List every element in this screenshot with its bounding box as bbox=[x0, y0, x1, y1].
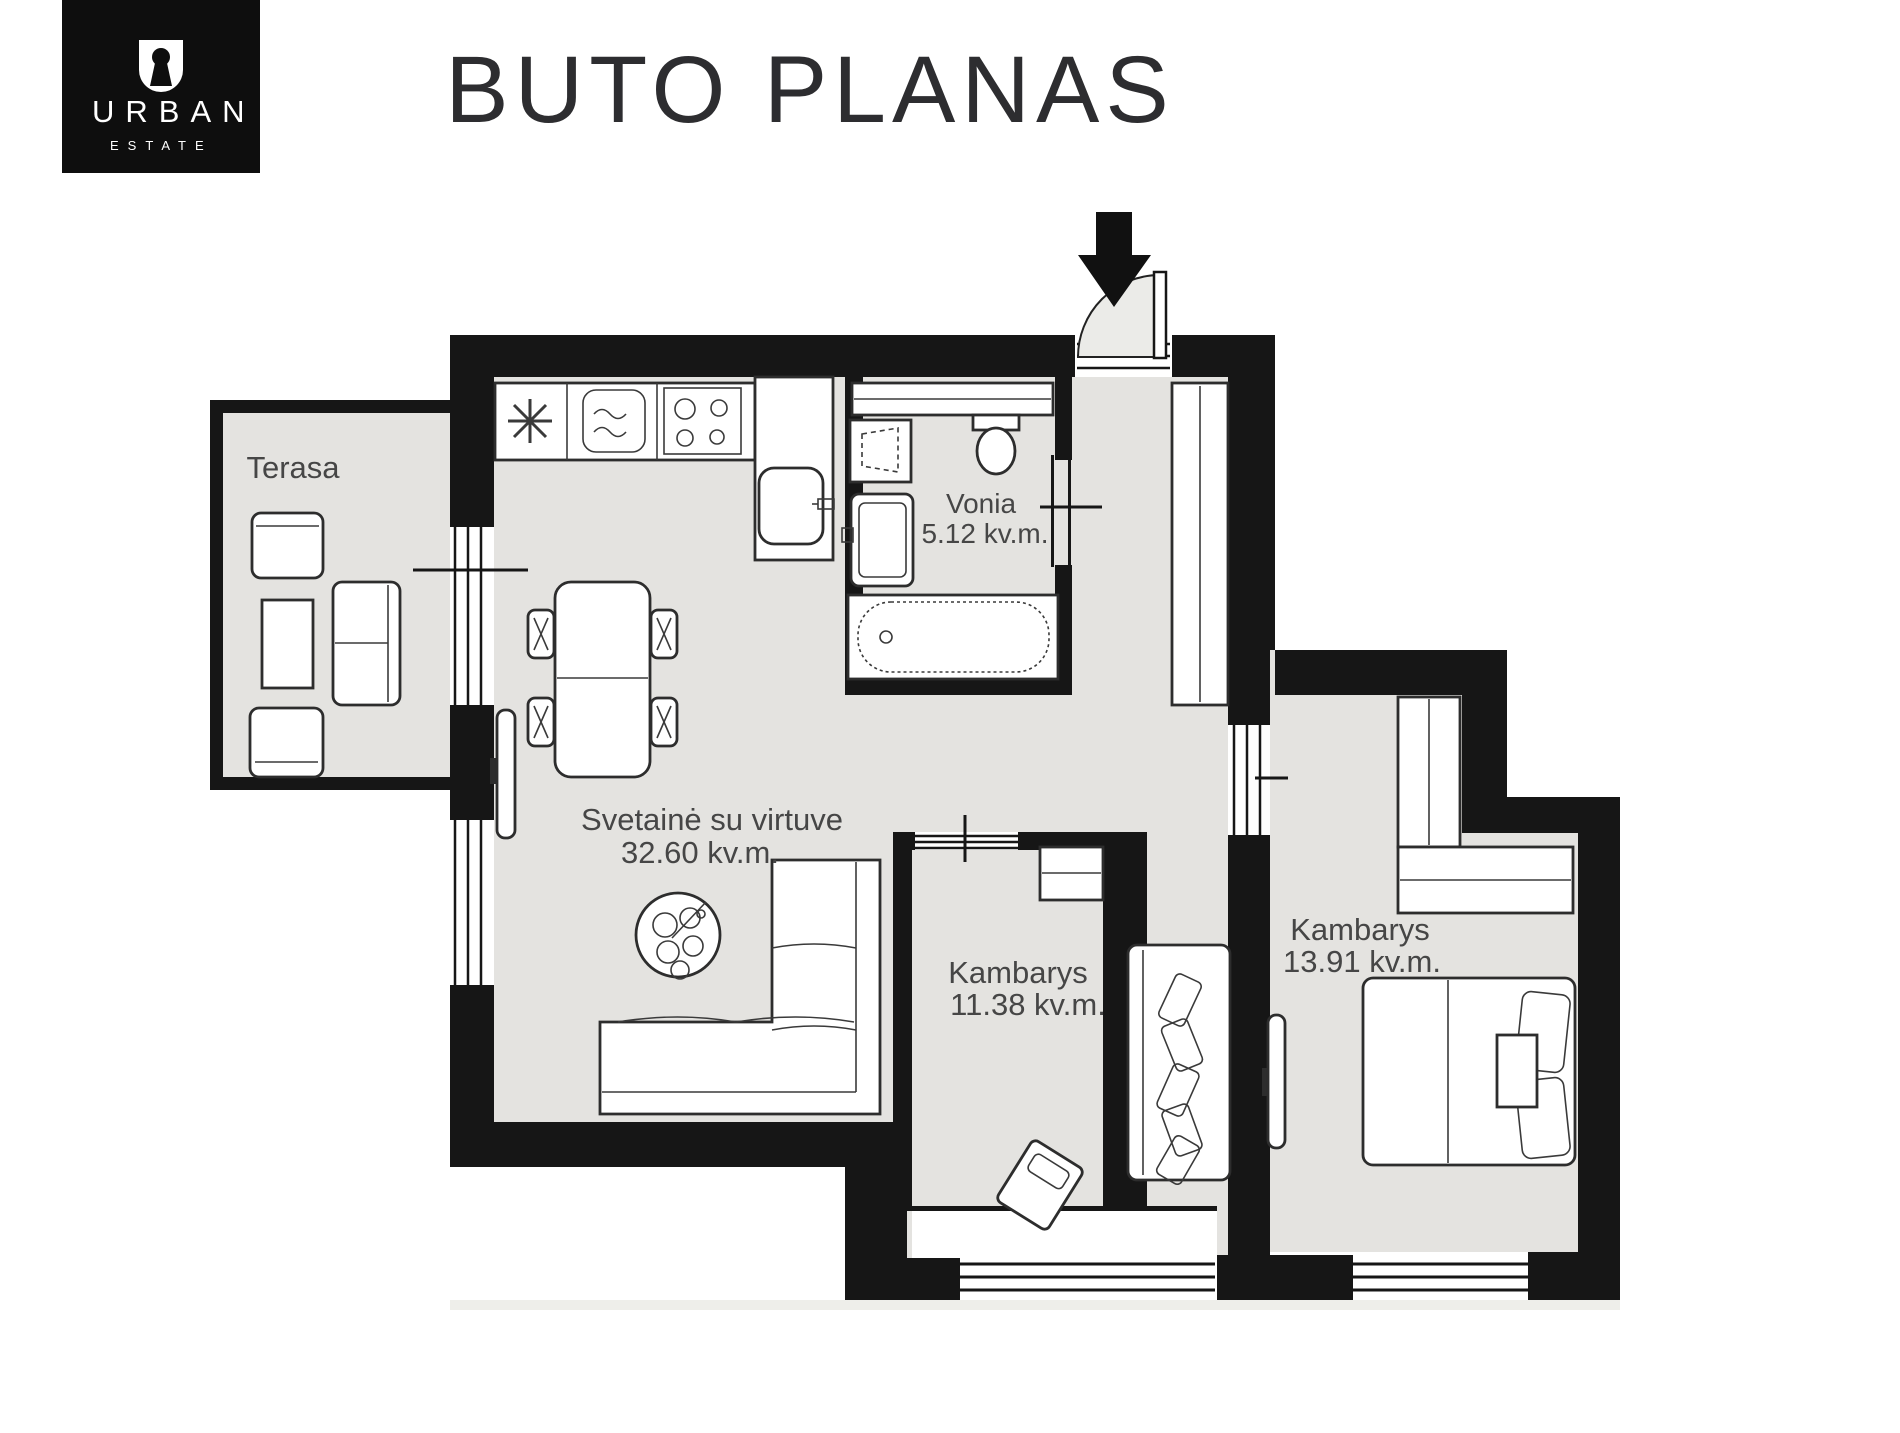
dining-chair bbox=[528, 698, 554, 746]
terrace-loveseat bbox=[333, 582, 400, 705]
bedroom2-area-label: 13.91 kv.m. bbox=[1283, 944, 1441, 979]
wall-terrace-west bbox=[210, 400, 223, 790]
dining-chair bbox=[528, 610, 554, 658]
wall-bay1-ledge bbox=[907, 1258, 960, 1300]
window-west-2 bbox=[450, 820, 494, 985]
wall-bay-pier bbox=[1217, 1255, 1353, 1300]
dining-chair bbox=[651, 610, 677, 658]
bedroom2-label: Kambarys bbox=[1290, 912, 1430, 947]
dining-table bbox=[555, 582, 650, 777]
wall-west-pier bbox=[450, 705, 494, 820]
wall-terrace-south bbox=[210, 777, 450, 790]
living-area-label: 32.60 kv.m. bbox=[621, 835, 779, 870]
terrace-chair bbox=[252, 513, 323, 578]
entrance-door-leaf bbox=[1154, 272, 1166, 358]
washing-machine-icon bbox=[850, 420, 911, 482]
terrace-chair bbox=[250, 708, 323, 777]
plan-shadow bbox=[450, 1300, 1620, 1310]
terrace-label: Terasa bbox=[246, 450, 340, 485]
dining-chair bbox=[651, 698, 677, 746]
hall-closet bbox=[1172, 383, 1228, 705]
bedroom1-bed bbox=[1128, 945, 1230, 1186]
wall-bedroom1-west bbox=[893, 832, 912, 1210]
wall-bedroom2-west-lower bbox=[1228, 835, 1270, 1257]
wall-hall-east bbox=[1228, 335, 1275, 650]
floor-plan-page: URBAN ESTATE BUTO PLANAS bbox=[0, 0, 1900, 1433]
bedroom1-area-label: 11.38 kv.m. bbox=[950, 987, 1106, 1022]
toilet-icon bbox=[973, 415, 1019, 474]
living-label: Svetainė su virtuve bbox=[581, 802, 843, 837]
wall-top-left bbox=[450, 335, 1075, 377]
fridge-icon bbox=[508, 399, 552, 443]
wall-terrace-north bbox=[210, 400, 450, 413]
window-west-1 bbox=[450, 527, 494, 705]
bath-sink-icon bbox=[842, 494, 913, 586]
bedroom2-bed bbox=[1363, 978, 1575, 1165]
floor-plan: Terasa Svetainė su virtuve 32.60 kv.m. V… bbox=[0, 0, 1900, 1433]
bathroom-area-label: 5.12 kv.m. bbox=[921, 518, 1048, 549]
bath-sliding-door-leaf bbox=[1068, 458, 1071, 570]
wall-bedroom2-west-upper bbox=[1228, 650, 1270, 725]
bathroom-label: Vonia bbox=[946, 488, 1016, 519]
terrace-table bbox=[262, 600, 313, 688]
bedroom1-shelf bbox=[1040, 847, 1103, 900]
bath-sliding-door-leaf bbox=[1051, 455, 1054, 567]
wall-bath-east-upper bbox=[1055, 377, 1072, 460]
entrance bbox=[1078, 212, 1166, 358]
wall-step-vertical bbox=[1462, 650, 1507, 797]
wall-east bbox=[1578, 797, 1620, 1300]
kitchen-sink-icon bbox=[759, 468, 834, 544]
bathtub-icon bbox=[848, 595, 1058, 679]
bedroom1-label: Kambarys bbox=[948, 955, 1088, 990]
wall-west-upper bbox=[450, 335, 494, 527]
wall-living-south bbox=[450, 1122, 907, 1167]
coffee-table bbox=[636, 893, 720, 979]
